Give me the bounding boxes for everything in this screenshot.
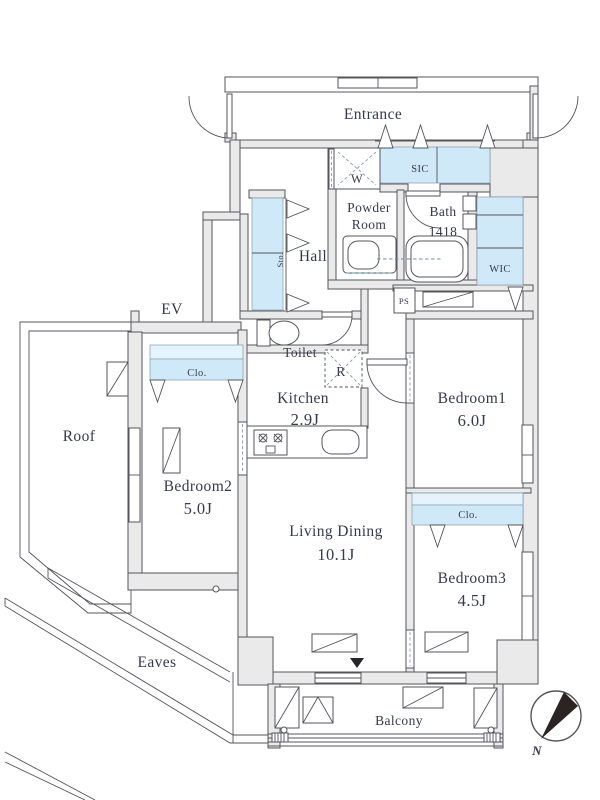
bedroom1-door [367, 359, 407, 403]
label-powder-room-2: Room [352, 217, 387, 232]
label-bedroom1: Bedroom1 [438, 390, 507, 407]
label-hall: Hall [299, 248, 327, 265]
kitchen-sink [322, 430, 359, 454]
label-closet-bedroom1: Clo. [458, 510, 477, 521]
eaves-outline [5, 568, 268, 800]
balcony-sliding-door-left [315, 673, 361, 683]
toilet-fixture [257, 320, 299, 346]
storage-door-mark-1 [287, 200, 309, 218]
sic-door-mark-1 [378, 125, 393, 148]
stove [254, 430, 287, 455]
label-bedroom1-area: 6.0J [458, 411, 487, 430]
window-bedroom2-left [129, 428, 140, 522]
north-label: N [531, 743, 542, 758]
ac-unit-balcony-1 [275, 687, 299, 728]
drain-symbol-1 [213, 586, 219, 592]
label-living-dining: Living Dining [289, 523, 382, 540]
closet2-door-mark-1 [150, 380, 165, 402]
drain-symbol-3 [488, 727, 494, 733]
label-washer: W [351, 172, 363, 186]
floor-plan: N Entrance SIC W Powder Room Bath 1418 W… [0, 0, 600, 800]
window-bedroom3-right [522, 552, 533, 640]
label-refrigerator: R [336, 364, 345, 379]
toilet-door [322, 312, 352, 345]
label-kitchen: Kitchen [277, 390, 329, 407]
label-toilet: Toilet [283, 345, 317, 360]
wic-door-mark [508, 287, 523, 310]
closet-bedroom1-top [412, 493, 523, 505]
label-entrance: Entrance [344, 106, 402, 123]
sic-door-mark-3 [480, 125, 495, 148]
closet1-door-mark-1 [430, 525, 445, 547]
floor-plan-canvas: N Entrance SIC W Powder Room Bath 1418 W… [0, 0, 600, 800]
label-sic: SIC [411, 164, 429, 175]
ac-unit-balcony-3 [403, 687, 443, 708]
bath-shelf-top [463, 196, 476, 211]
bath-shelf-bottom [463, 214, 476, 229]
label-pipe-space: PS [399, 296, 409, 306]
label-storage: Sto. [275, 252, 285, 267]
entrance-door-left [189, 94, 232, 138]
label-bath-size: 1418 [429, 224, 458, 239]
wash-basin [343, 236, 396, 273]
storage-door-mark-3 [287, 294, 309, 312]
shoe-closet-sic [378, 147, 490, 183]
entrance-door-right [533, 94, 578, 138]
entry-direction-marker [350, 658, 364, 668]
drain-grate-right [484, 733, 500, 742]
label-bedroom3: Bedroom3 [438, 570, 507, 587]
front-door [338, 78, 417, 88]
furniture-bedroom2 [163, 428, 180, 473]
label-wic: WIC [489, 264, 511, 275]
label-roof: Roof [63, 428, 96, 445]
furniture-bedroom3 [425, 632, 468, 652]
label-bedroom2-area: 5.0J [184, 499, 213, 518]
ac-unit-balcony-2 [303, 697, 333, 723]
closet1-door-mark-2 [508, 525, 523, 547]
furniture-living [312, 634, 357, 652]
compass: N [531, 691, 581, 758]
window-bedroom1-right [522, 425, 533, 483]
sic-door-mark-2 [413, 125, 428, 148]
label-powder-room-1: Powder [347, 200, 391, 215]
label-elevator: EV [161, 301, 183, 318]
drain-symbol-2 [281, 727, 287, 733]
label-balcony: Balcony [375, 713, 423, 728]
balcony-railing [268, 733, 503, 746]
label-kitchen-area: 2.9J [291, 410, 320, 429]
vent-bedroom1 [423, 292, 473, 307]
ac-unit-roof [107, 362, 128, 396]
ac-unit-balcony-4 [474, 688, 497, 728]
closet-bedroom2-top [150, 345, 243, 359]
label-bedroom3-area: 4.5J [458, 591, 487, 610]
label-bath: Bath [429, 204, 456, 219]
balcony-sliding-door-right [427, 673, 466, 683]
label-eaves: Eaves [137, 654, 176, 671]
label-living-dining-area: 10.1J [317, 545, 354, 564]
label-closet-bedroom2: Clo. [187, 368, 206, 379]
kitchen-counter [247, 426, 367, 458]
drain-grate-left [272, 733, 288, 742]
label-bedroom2: Bedroom2 [164, 478, 233, 495]
